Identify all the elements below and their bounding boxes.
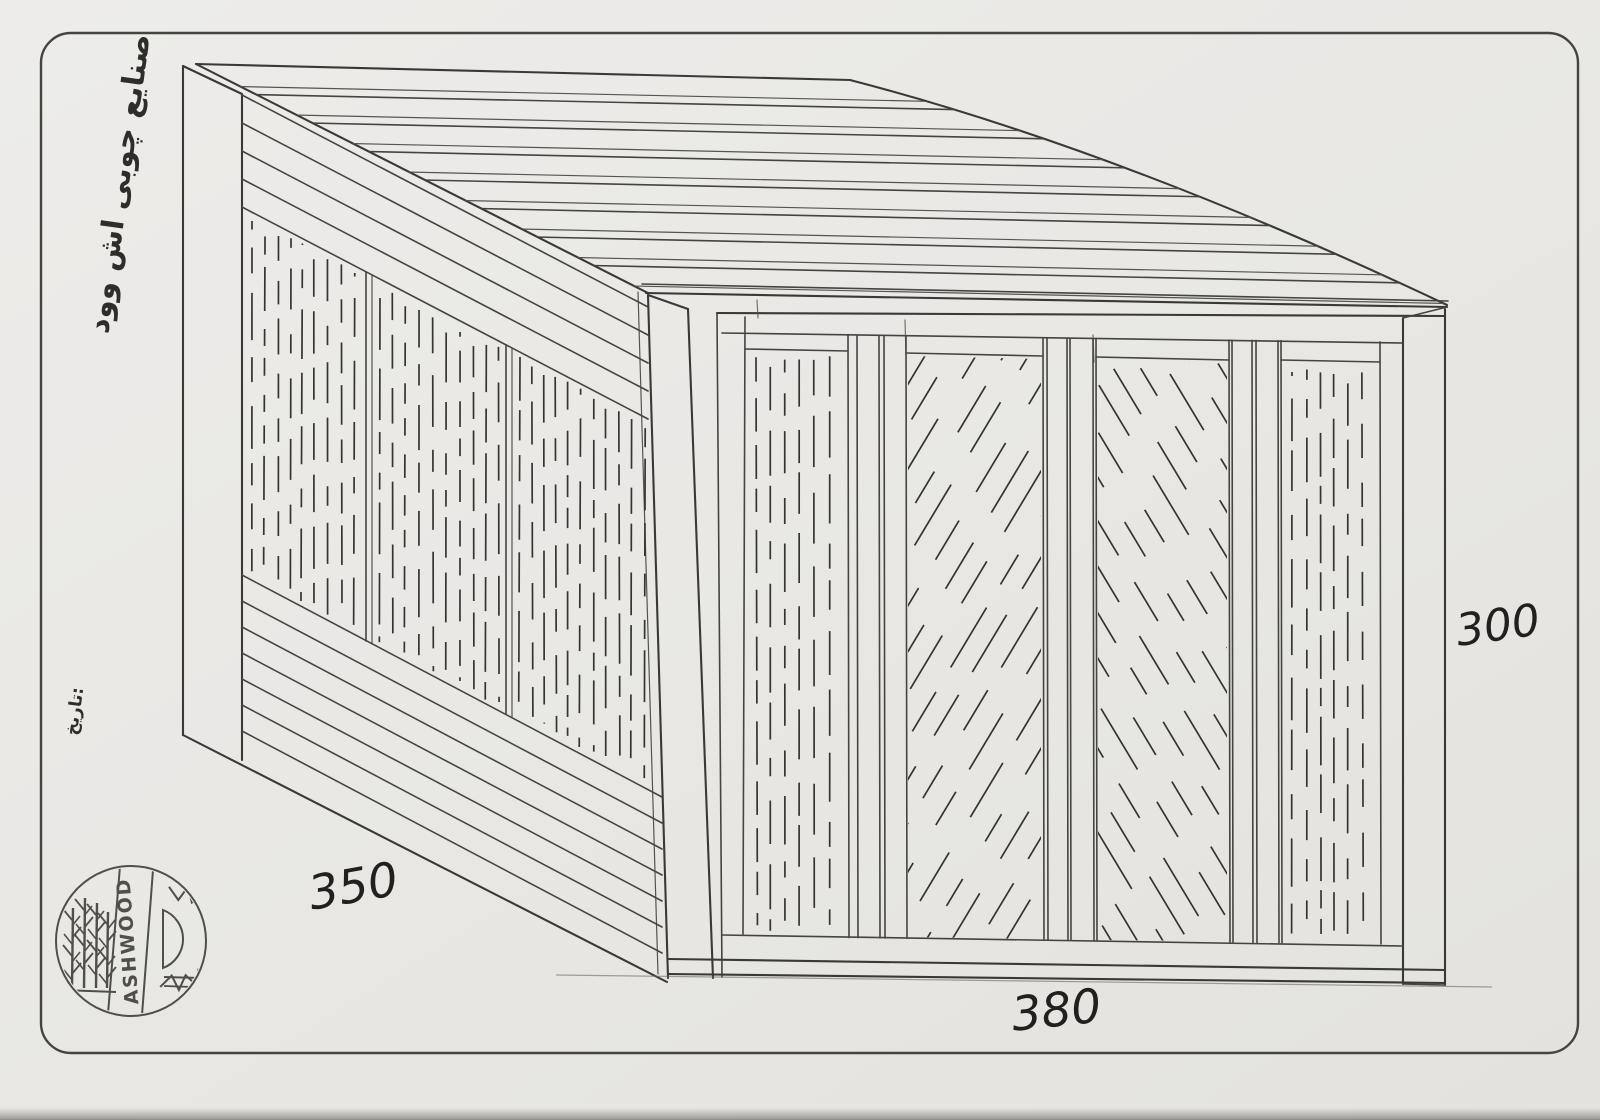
sketch-line (814, 360, 815, 927)
sketch-line (164, 986, 193, 987)
sketch-line (379, 289, 380, 642)
sketch-line (1285, 326, 1600, 969)
sketch-line (1362, 372, 1363, 931)
sketch-line (879, 336, 880, 938)
sketch-line (84, 898, 85, 988)
sketch-line (433, 317, 434, 671)
sketch-line (1500, 330, 1600, 971)
sketch-line (99, 974, 107, 984)
sketch-line (636, 326, 1022, 969)
sketch-line (1307, 330, 1600, 971)
sketch-line (519, 357, 520, 715)
crate-technical-drawing: صنایع چوبی اش وود تاریخ: 350 380 300 ASH… (0, 0, 1600, 1120)
sketch-line (619, 411, 620, 763)
date-label: تاریخ: (62, 686, 88, 736)
sketch-line (293, 115, 1455, 140)
sketch-line (354, 273, 355, 625)
sketch-line (88, 929, 96, 939)
dimension-side-label: 350 (304, 852, 402, 922)
sketch-line (771, 330, 1156, 971)
sketch-line (857, 336, 858, 938)
sketch-line (1278, 341, 1279, 943)
sketch-line (820, 326, 1206, 969)
sketch-line (648, 294, 1455, 311)
sketch-line (1047, 326, 1433, 969)
sketch-line (879, 326, 1265, 969)
sketch-line (98, 913, 107, 924)
sketch-line (962, 326, 1348, 969)
sketch-line (576, 258, 1455, 277)
dimension-front-label: 380 (1009, 979, 1104, 1043)
sketch-line (906, 336, 907, 938)
dimension-height-label: 300 (1453, 595, 1543, 657)
sketch-line (717, 326, 1103, 969)
sketch-line (98, 949, 107, 960)
sketch-line (1077, 326, 1463, 969)
sketch-line (1229, 340, 1230, 942)
sketch-line (591, 266, 1455, 285)
sketch-line (237, 87, 1455, 113)
sketch-line (1067, 338, 1068, 940)
sketch-line (1129, 326, 1515, 969)
trees-icon (62, 898, 116, 992)
sketch-line (544, 374, 545, 724)
sketch-line (75, 935, 84, 946)
sketch-line (884, 336, 885, 938)
sketch-line (693, 330, 1078, 971)
sketch-line (164, 977, 200, 978)
sketch-line (1043, 338, 1044, 940)
sketch-line (555, 377, 556, 732)
sketch-line (88, 965, 96, 975)
sketch-line (290, 238, 291, 595)
sketch-line (341, 264, 342, 619)
sketch-line (301, 243, 302, 601)
sketch-line (934, 326, 1320, 969)
sketch-line (1070, 338, 1071, 940)
sketch-line (1256, 340, 1257, 942)
sketch-line (99, 938, 107, 948)
page-border (41, 33, 1578, 1053)
logo-wordmark: ASHWOOD (113, 877, 144, 1006)
sketch-line (847, 330, 1232, 971)
sketch-line (242, 123, 648, 335)
saw-hub (163, 910, 183, 968)
sketch-line (1234, 326, 1600, 969)
sketch-line (1208, 326, 1594, 969)
sketch-line (1320, 372, 1321, 934)
sketch-line (1281, 330, 1600, 971)
sketch-line (1017, 326, 1403, 969)
sketch-line (392, 293, 393, 648)
sketch-line (756, 357, 757, 925)
sketch-line (644, 425, 645, 778)
sketch-line (1550, 330, 1600, 971)
crate-front-face (502, 295, 1600, 987)
sketch-line (1047, 338, 1048, 940)
sketch-line (96, 903, 97, 988)
sketch-line (579, 389, 580, 747)
sketch-line (1310, 326, 1600, 969)
sketch-line (1259, 326, 1600, 969)
sketch-line (1096, 338, 1097, 940)
sketch-line (1093, 338, 1094, 940)
crate-top-face (196, 64, 1455, 311)
sketch-line (1525, 330, 1600, 971)
sketch-line (63, 909, 72, 920)
sketch-line (631, 419, 632, 769)
sketch-line (690, 326, 1076, 969)
sketch-line (75, 899, 84, 910)
sketch-line (404, 298, 405, 652)
sketch-line (1281, 341, 1282, 943)
sketch-line (745, 330, 1130, 971)
sketch-line (1421, 330, 1600, 971)
sketch-line (1252, 340, 1253, 942)
sketch-line (72, 908, 73, 988)
sketch-line (264, 228, 265, 581)
sketch-line (909, 326, 1295, 969)
ashwood-logo: ASHWOOD (56, 866, 230, 1016)
sketch-line (956, 330, 1341, 971)
sketch-line (252, 95, 1455, 121)
sketch-line (498, 347, 499, 702)
sketch-line (1232, 340, 1233, 942)
sketch-line (63, 945, 72, 956)
sketch-line (64, 934, 72, 944)
sketch-line (485, 342, 486, 699)
company-name-text: صنایع چوبی اش وود (81, 32, 158, 336)
sketch-line (309, 123, 1455, 148)
sketch-line (532, 367, 533, 717)
paper-sheet: صنایع چوبی اش وود تاریخ: 350 380 300 ASH… (0, 0, 1600, 1120)
sketch-line (1101, 326, 1487, 969)
sketch-line (1251, 330, 1600, 971)
sketch-line (1380, 342, 1381, 944)
left-post (183, 66, 242, 94)
sketch-line (62, 990, 116, 992)
sketch-line (848, 336, 849, 938)
